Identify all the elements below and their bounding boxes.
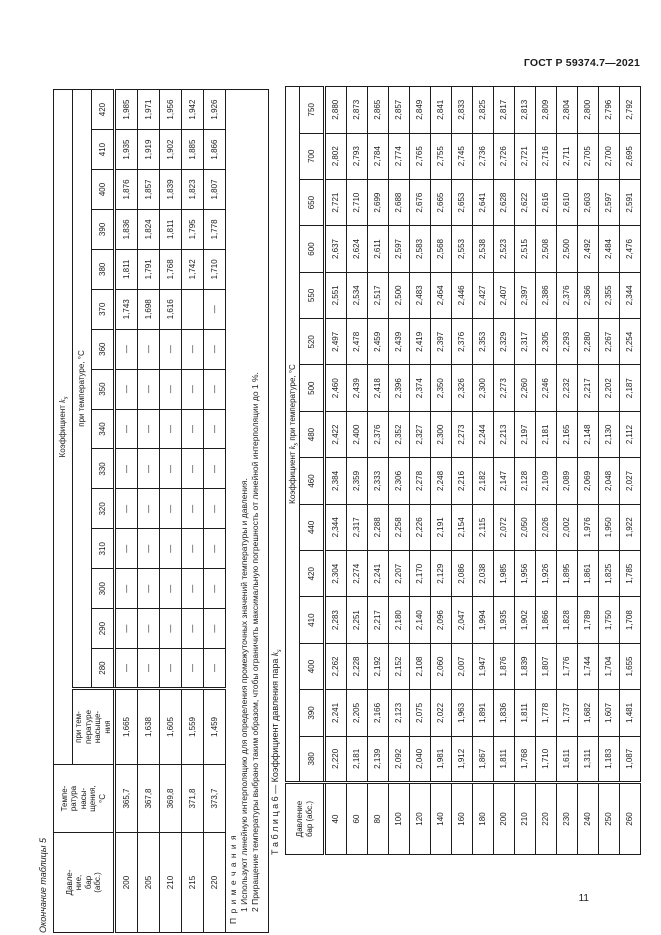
- table5-value-cell: 1,836: [115, 209, 138, 249]
- table6-body: 402,2202,2412,2622,2832,3042,3442,3842,4…: [325, 87, 641, 855]
- table5-value-cell: —: [115, 649, 138, 689]
- table6-value-cell: 1,895: [557, 551, 578, 597]
- table5-value-cell: —: [160, 609, 182, 649]
- table5-temp-header-cell: 290: [92, 609, 115, 649]
- table6-value-cell: 2,213: [494, 411, 515, 457]
- table5-data-row: 200365,71,665—————————1,7431,8111,8361,8…: [115, 90, 138, 933]
- table6-value-cell: 2,397: [431, 319, 452, 365]
- table6-value-cell: 2,695: [620, 133, 641, 179]
- table6-value-cell: 1,981: [431, 736, 452, 782]
- table5-ksat-cell: 1,605: [160, 689, 182, 765]
- table6-value-cell: 2,344: [325, 504, 347, 550]
- standard-number-header: ГОСТ Р 59374.7—2021: [524, 57, 640, 69]
- table6-value-cell: 2,419: [410, 319, 431, 365]
- table6-data-row: 2001,8111,8361,8761,9351,9852,0722,1472,…: [494, 87, 515, 855]
- table5-pressure-cell: 210: [160, 833, 182, 933]
- table5-temp-header-cell: 390: [92, 209, 115, 249]
- table6-value-cell: 2,246: [536, 365, 557, 411]
- table6-value-cell: 2,745: [452, 133, 473, 179]
- table5-value-cell: —: [204, 409, 226, 449]
- table6-value-cell: 2,244: [473, 411, 494, 457]
- table6-value-cell: 2,232: [557, 365, 578, 411]
- table6-data-row: 1002,0922,1232,1522,1802,2072,2582,3062,…: [389, 87, 410, 855]
- table6-value-cell: 2,306: [389, 458, 410, 504]
- table6-value-cell: 2,500: [389, 272, 410, 318]
- table6-value-cell: 2,515: [515, 226, 536, 272]
- table5-value-cell: 1,857: [138, 170, 160, 210]
- table5-temp-header-cell: 300: [92, 569, 115, 609]
- table5-value-cell: —: [204, 369, 226, 409]
- table6-pressure-cell: 250: [599, 783, 620, 855]
- table6-value-cell: 2,288: [368, 504, 389, 550]
- table6-value-cell: 2,181: [536, 411, 557, 457]
- table6-value-cell: 2,108: [410, 643, 431, 689]
- table6-value-cell: 2,784: [368, 133, 389, 179]
- table6-value-cell: 1,922: [620, 504, 641, 550]
- table5-value-cell: —: [138, 529, 160, 569]
- table6-value-cell: 2,705: [578, 133, 599, 179]
- table6-value-cell: 2,459: [368, 319, 389, 365]
- table6-value-cell: 2,376: [557, 272, 578, 318]
- table5-value-cell: 1,743: [115, 289, 138, 329]
- table5-value-cell: —: [160, 489, 182, 529]
- table6-value-cell: 1,704: [599, 643, 620, 689]
- table6-value-cell: 2,765: [410, 133, 431, 179]
- table5-temp-header-cell: 370: [92, 289, 115, 329]
- table5-pressure-cell: 220: [204, 833, 226, 933]
- table6-temp-header-cell: 480: [300, 411, 325, 457]
- table6-value-cell: 1,985: [494, 551, 515, 597]
- table6-rotated-block: Т а б л и ц а 6 — Коэффициент давления п…: [268, 85, 648, 855]
- table6-value-cell: 2,228: [347, 643, 368, 689]
- coefficient-label: Коэффициент: [58, 403, 67, 458]
- table6-value-cell: 2,446: [452, 272, 473, 318]
- table6-value-cell: 2,197: [515, 411, 536, 457]
- table6-temp-header-cell: 460: [300, 458, 325, 504]
- table6-data-row: 2101,7681,8111,8391,9021,9562,0502,1282,…: [515, 87, 536, 855]
- table5-value-cell: 1,919: [138, 130, 160, 170]
- table5-value-cell: 1,823: [182, 170, 204, 210]
- table6-data-row: 2601,0871,4811,6551,7081,7851,9222,0272,…: [620, 87, 641, 855]
- table5-rotated-block: Окончание таблицы 5 Давле- ние, бар (абс…: [36, 88, 270, 933]
- table6-value-cell: 2,366: [578, 272, 599, 318]
- table5-value-cell: —: [182, 489, 204, 529]
- table6-value-cell: 1,876: [494, 643, 515, 689]
- table5-notes-row: П р и м е ч а н и я 1 Используют линейну…: [226, 90, 269, 933]
- table6-value-cell: 2,534: [347, 272, 368, 318]
- table5-data-row: 215371,81,559—————————1,7421,7951,8231,8…: [182, 90, 204, 933]
- table6-value-cell: 1,950: [599, 504, 620, 550]
- table6-value-cell: 1,311: [578, 736, 599, 782]
- table6-value-cell: 1,811: [515, 690, 536, 736]
- table5-pressure-cell: 215: [182, 833, 204, 933]
- table6-temp-header-cell: 500: [300, 365, 325, 411]
- table6-value-cell: 2,300: [473, 365, 494, 411]
- table6-value-cell: 1,935: [494, 597, 515, 643]
- table6-value-cell: 2,603: [578, 179, 599, 225]
- table6-value-cell: 2,128: [515, 458, 536, 504]
- table6-value-cell: 2,721: [515, 133, 536, 179]
- table6-data-row: 2501,1831,6071,7041,7501,8251,9502,0482,…: [599, 87, 620, 855]
- table6-pressure-cell: 240: [578, 783, 599, 855]
- table6-value-cell: 2,849: [410, 87, 431, 134]
- table5-value-cell: —: [138, 569, 160, 609]
- table5-value-cell: 1,795: [182, 209, 204, 249]
- table5-value-cell: —: [204, 489, 226, 529]
- k-symbol: ks: [58, 397, 67, 403]
- table6-value-cell: 1,183: [599, 736, 620, 782]
- table6-value-cell: 2,716: [536, 133, 557, 179]
- table6-value-cell: 1,926: [536, 551, 557, 597]
- table6-value-cell: 2,096: [431, 597, 452, 643]
- table6-value-cell: 2,611: [368, 226, 389, 272]
- table6-value-cell: 2,293: [557, 319, 578, 365]
- table6-data-row: 402,2202,2412,2622,2832,3042,3442,3842,4…: [325, 87, 347, 855]
- table6-temp-header-cell: 410: [300, 597, 325, 643]
- table6-value-cell: 1,708: [620, 597, 641, 643]
- table6-pressure-cell: 220: [536, 783, 557, 855]
- table6-value-cell: 2,216: [452, 458, 473, 504]
- table6-value-cell: 2,376: [452, 319, 473, 365]
- table5-value-cell: —: [204, 449, 226, 489]
- table6-value-cell: 2,616: [536, 179, 557, 225]
- table6-pressure-cell: 140: [431, 783, 452, 855]
- table6-value-cell: 2,809: [536, 87, 557, 134]
- table6-value-cell: 2,653: [452, 179, 473, 225]
- table6-value-cell: 2,165: [557, 411, 578, 457]
- table6-value-cell: 1,744: [578, 643, 599, 689]
- table6-value-cell: 2,267: [599, 319, 620, 365]
- table5-value-cell: 1,971: [138, 90, 160, 130]
- table5-value-cell: 1,778: [204, 209, 226, 249]
- table5-value-cell: 1,956: [160, 90, 182, 130]
- table5-value-cell: —: [115, 489, 138, 529]
- k-symbol: ks: [288, 443, 297, 449]
- table6-pressure-cell: 160: [452, 783, 473, 855]
- table5-sat-temp-cell: 369,8: [160, 765, 182, 833]
- table5-ksat-cell: 1,459: [204, 689, 226, 765]
- table6-value-cell: 2,060: [431, 643, 452, 689]
- table6-value-cell: 2,026: [536, 504, 557, 550]
- table6-value-cell: 2,439: [389, 319, 410, 365]
- table6-value-cell: 2,326: [452, 365, 473, 411]
- table5-body: 200365,71,665—————————1,7431,8111,8361,8…: [115, 90, 226, 933]
- table5-value-cell: 1,866: [204, 130, 226, 170]
- table6-value-cell: 2,407: [494, 272, 515, 318]
- table6-value-cell: 2,022: [431, 690, 452, 736]
- table5-value-cell: —: [138, 369, 160, 409]
- table6-value-cell: 2,597: [389, 226, 410, 272]
- table5-sat-temp-cell: 365,7: [115, 765, 138, 833]
- table6-temp-header-cell: 600: [300, 226, 325, 272]
- table5-value-cell: —: [204, 649, 226, 689]
- table6-value-cell: 2,804: [557, 87, 578, 134]
- table6-value-cell: 2,386: [536, 272, 557, 318]
- table5-value-cell: —: [204, 609, 226, 649]
- table6-value-cell: 2,439: [347, 365, 368, 411]
- notes-cell: П р и м е ч а н и я 1 Используют линейну…: [226, 90, 269, 933]
- table6-value-cell: 2,089: [557, 458, 578, 504]
- note-item-2: 2 Приращение температуры выбрано таким о…: [250, 98, 261, 912]
- table6-value-cell: 2,711: [557, 133, 578, 179]
- table6-data-row: 1401,9812,0222,0602,0962,1292,1912,2482,…: [431, 87, 452, 855]
- table6-value-cell: 2,833: [452, 87, 473, 134]
- table6-value-cell: 2,813: [515, 87, 536, 134]
- table6-value-cell: 2,241: [325, 690, 347, 736]
- table5-at-temperature-header: при температуре, °С: [73, 90, 92, 689]
- table6-data-row: 2201,7101,7781,8071,8661,9262,0262,1092,…: [536, 87, 557, 855]
- table6-value-cell: 2,274: [347, 551, 368, 597]
- table6-value-cell: 1,655: [620, 643, 641, 689]
- table6-value-cell: 2,273: [452, 411, 473, 457]
- coefficient-label: Коэффициент: [288, 449, 297, 504]
- table6-value-cell: 2,376: [368, 411, 389, 457]
- k-symbol: ks: [270, 649, 280, 656]
- table5-temp-header-cell: 280: [92, 649, 115, 689]
- table6-value-cell: 2,800: [578, 87, 599, 134]
- table6-value-cell: 1,902: [515, 597, 536, 643]
- table6-value-cell: 2,148: [578, 411, 599, 457]
- table6-value-cell: 1,947: [473, 643, 494, 689]
- table6-value-cell: 2,123: [389, 690, 410, 736]
- table6-value-cell: 2,755: [431, 133, 452, 179]
- table6-value-cell: 2,483: [410, 272, 431, 318]
- table6-value-cell: 2,610: [557, 179, 578, 225]
- table5-value-cell: —: [138, 649, 160, 689]
- table6-data-row: 1601,9121,9632,0072,0472,0862,1542,2162,…: [452, 87, 473, 855]
- table5-value-cell: —: [182, 409, 204, 449]
- table6-value-cell: 2,688: [389, 179, 410, 225]
- table5-value-cell: —: [182, 449, 204, 489]
- table6-value-cell: 2,736: [473, 133, 494, 179]
- table5-value-cell: —: [115, 449, 138, 489]
- table5-sat-temp-header: Темпе- ратура насы- щения, °С: [54, 765, 115, 833]
- table6-value-cell: 2,508: [536, 226, 557, 272]
- table5-value-cell: 1,824: [138, 209, 160, 249]
- table6-value-cell: 2,880: [325, 87, 347, 134]
- table6-value-cell: 2,597: [599, 179, 620, 225]
- table5-coefficient-header: Коэффициент ks: [54, 90, 73, 765]
- table6-value-cell: 2,280: [578, 319, 599, 365]
- table6-value-cell: 2,072: [494, 504, 515, 550]
- table5-value-cell: 1,885: [182, 130, 204, 170]
- table5-temp-header-cell: 320: [92, 489, 115, 529]
- table6-value-cell: 2,721: [325, 179, 347, 225]
- table6-value-cell: 2,217: [368, 597, 389, 643]
- table6-value-cell: 2,873: [347, 87, 368, 134]
- table6-value-cell: 2,699: [368, 179, 389, 225]
- table6-value-cell: 2,497: [325, 319, 347, 365]
- table6-value-cell: 2,258: [389, 504, 410, 550]
- table6-value-cell: 2,344: [620, 272, 641, 318]
- table5-value-cell: 1,698: [138, 289, 160, 329]
- table5-value-cell: 1,807: [204, 170, 226, 210]
- table6-value-cell: 2,333: [368, 458, 389, 504]
- table6-value-cell: 2,192: [368, 643, 389, 689]
- table6-value-cell: 2,180: [389, 597, 410, 643]
- table6-value-cell: 2,384: [325, 458, 347, 504]
- table6-value-cell: 2,254: [620, 319, 641, 365]
- table6-pressure-cell: 200: [494, 783, 515, 855]
- table6-value-cell: 2,517: [368, 272, 389, 318]
- table6-value-cell: 2,273: [494, 365, 515, 411]
- table5-value-cell: —: [115, 529, 138, 569]
- table6-pressure-cell: 100: [389, 783, 410, 855]
- table6-pressure-cell: 230: [557, 783, 578, 855]
- table6-value-cell: 1,607: [599, 690, 620, 736]
- document-page: ГОСТ Р 59374.7—2021 Окончание таблицы 5 …: [0, 0, 661, 935]
- table6-value-cell: 1,789: [578, 597, 599, 643]
- table6-value-cell: 2,350: [431, 365, 452, 411]
- table6-pressure-cell: 40: [325, 783, 347, 855]
- table6-value-cell: 2,492: [578, 226, 599, 272]
- table5-temp-header-cell: 410: [92, 130, 115, 170]
- table5-temp-header-cell: 330: [92, 449, 115, 489]
- table5-temp-header-cell: 360: [92, 329, 115, 369]
- table6-value-cell: 2,591: [620, 179, 641, 225]
- table6-value-cell: 2,422: [325, 411, 347, 457]
- table6-value-cell: 2,048: [599, 458, 620, 504]
- table5-value-cell: —: [204, 329, 226, 369]
- table6-value-cell: 1,994: [473, 597, 494, 643]
- table5-value-cell: 1,876: [115, 170, 138, 210]
- table5-value-cell: 1,839: [160, 170, 182, 210]
- table5-temp-header-cell: 420: [92, 90, 115, 130]
- table6-value-cell: 2,220: [325, 736, 347, 782]
- table6-value-cell: 2,553: [452, 226, 473, 272]
- table6-value-cell: 2,726: [494, 133, 515, 179]
- table5-value-cell: 1,935: [115, 130, 138, 170]
- table6-value-cell: 2,187: [620, 365, 641, 411]
- table6-pressure-cell: 260: [620, 783, 641, 855]
- table6-caption: Т а б л и ц а 6 — Коэффициент давления п…: [268, 85, 285, 855]
- table5-pressure-cell: 200: [115, 833, 138, 933]
- table6-value-cell: 2,841: [431, 87, 452, 134]
- table6-value-cell: 2,115: [473, 504, 494, 550]
- table6-value-cell: 2,538: [473, 226, 494, 272]
- table5-value-cell: 1,811: [115, 249, 138, 289]
- table5-data-row: 210369,81,605—————————1,6161,7681,8111,8…: [160, 90, 182, 933]
- table5-value-cell: —: [160, 409, 182, 449]
- table6-header: Давление бар (абс.) Коэффициент ks при т…: [286, 87, 325, 855]
- table6-value-cell: 2,641: [473, 179, 494, 225]
- table6-value-cell: 2,283: [325, 597, 347, 643]
- table5-value-cell: 1,616: [160, 289, 182, 329]
- table6-data-row: 2301,6111,7371,7761,8281,8952,0022,0892,…: [557, 87, 578, 855]
- table6-value-cell: 2,802: [325, 133, 347, 179]
- table6-value-cell: 2,825: [473, 87, 494, 134]
- table5-value-cell: —: [115, 329, 138, 369]
- table5-pressure-cell: 205: [138, 833, 160, 933]
- table5-value-cell: —: [182, 369, 204, 409]
- table6-value-cell: 1,861: [578, 551, 599, 597]
- table5-temp-header-cell: 310: [92, 529, 115, 569]
- table6-value-cell: 2,226: [410, 504, 431, 550]
- table6-temp-header-cell: 650: [300, 179, 325, 225]
- table6-value-cell: 1,825: [599, 551, 620, 597]
- table6-value-cell: 2,317: [515, 319, 536, 365]
- table6-value-cell: 2,317: [347, 504, 368, 550]
- table6-value-cell: 2,069: [578, 458, 599, 504]
- table6-value-cell: 2,202: [599, 365, 620, 411]
- table6-value-cell: 2,262: [325, 643, 347, 689]
- table6-value-cell: 2,241: [368, 551, 389, 597]
- table5-value-cell: 1,811: [160, 209, 182, 249]
- table6-value-cell: 1,839: [515, 643, 536, 689]
- table6-value-cell: 2,248: [431, 458, 452, 504]
- table5-ksat-cell: 1,559: [182, 689, 204, 765]
- table5-value-cell: —: [160, 569, 182, 609]
- table5-ksat-cell: 1,665: [115, 689, 138, 765]
- table6-value-cell: 2,205: [347, 690, 368, 736]
- table6-value-cell: 2,130: [599, 411, 620, 457]
- table6-value-cell: 2,086: [452, 551, 473, 597]
- table6-value-cell: 2,170: [410, 551, 431, 597]
- table6-value-cell: 1,481: [620, 690, 641, 736]
- table6-temp-header-cell: 700: [300, 133, 325, 179]
- table6-temp-header-cell: 550: [300, 272, 325, 318]
- table6-value-cell: 2,710: [347, 179, 368, 225]
- table6-value-cell: 2,665: [431, 179, 452, 225]
- table6-value-cell: 2,154: [452, 504, 473, 550]
- table6-value-cell: 1,682: [578, 690, 599, 736]
- page-number: 11: [579, 893, 589, 904]
- table6-value-cell: 2,278: [410, 458, 431, 504]
- table6-value-cell: 2,251: [347, 597, 368, 643]
- table6-value-cell: 1,750: [599, 597, 620, 643]
- table6-value-cell: 2,191: [431, 504, 452, 550]
- table6-temp-header-cell: 420: [300, 551, 325, 597]
- table5-temp-header-cell: 350: [92, 369, 115, 409]
- table6-value-cell: 2,027: [620, 458, 641, 504]
- table6-value-cell: 2,793: [347, 133, 368, 179]
- table5-header-row-1: Давле- ние, бар (абс.) Темпе- ратура нас…: [54, 90, 73, 933]
- table6-caption-text: — Коэффициент давления пара: [270, 656, 280, 796]
- table6-data-row: 1202,0402,0752,1082,1402,1702,2262,2782,…: [410, 87, 431, 855]
- table5-value-cell: 1,742: [182, 249, 204, 289]
- table6-value-cell: 1,776: [557, 643, 578, 689]
- table6-value-cell: 2,147: [494, 458, 515, 504]
- table6-value-cell: 2,637: [325, 226, 347, 272]
- table5-value-cell: —: [138, 449, 160, 489]
- table6-value-cell: 2,523: [494, 226, 515, 272]
- table6-pressure-header: Давление бар (абс.): [286, 783, 325, 855]
- table6-value-cell: 2,396: [389, 365, 410, 411]
- table6-value-cell: 2,568: [431, 226, 452, 272]
- table6-value-cell: 1,956: [515, 551, 536, 597]
- table6-value-cell: 2,583: [410, 226, 431, 272]
- table6-value-cell: 2,353: [473, 319, 494, 365]
- table5-value-cell: —: [160, 329, 182, 369]
- table6-value-cell: 2,484: [599, 226, 620, 272]
- table6-value-cell: 2,400: [347, 411, 368, 457]
- table6-caption-label: Т а б л и ц а 6: [270, 796, 280, 855]
- table6-value-cell: 2,112: [620, 411, 641, 457]
- table6-value-cell: 2,359: [347, 458, 368, 504]
- table5-value-cell: —: [204, 529, 226, 569]
- table6-value-cell: 1,807: [536, 643, 557, 689]
- table5-sat-temp-cell: 367,8: [138, 765, 160, 833]
- table6-value-cell: 2,047: [452, 597, 473, 643]
- table6-value-cell: 2,166: [368, 690, 389, 736]
- table6-value-cell: 2,329: [494, 319, 515, 365]
- table6-value-cell: 2,140: [410, 597, 431, 643]
- table5-data-row: 205367,81,638—————————1,6981,7911,8241,8…: [138, 90, 160, 933]
- at-temperature-label: при температуре, °С: [288, 364, 297, 443]
- table6-value-cell: 1,912: [452, 736, 473, 782]
- table6-value-cell: 2,092: [389, 736, 410, 782]
- table6-value-cell: 1,891: [473, 690, 494, 736]
